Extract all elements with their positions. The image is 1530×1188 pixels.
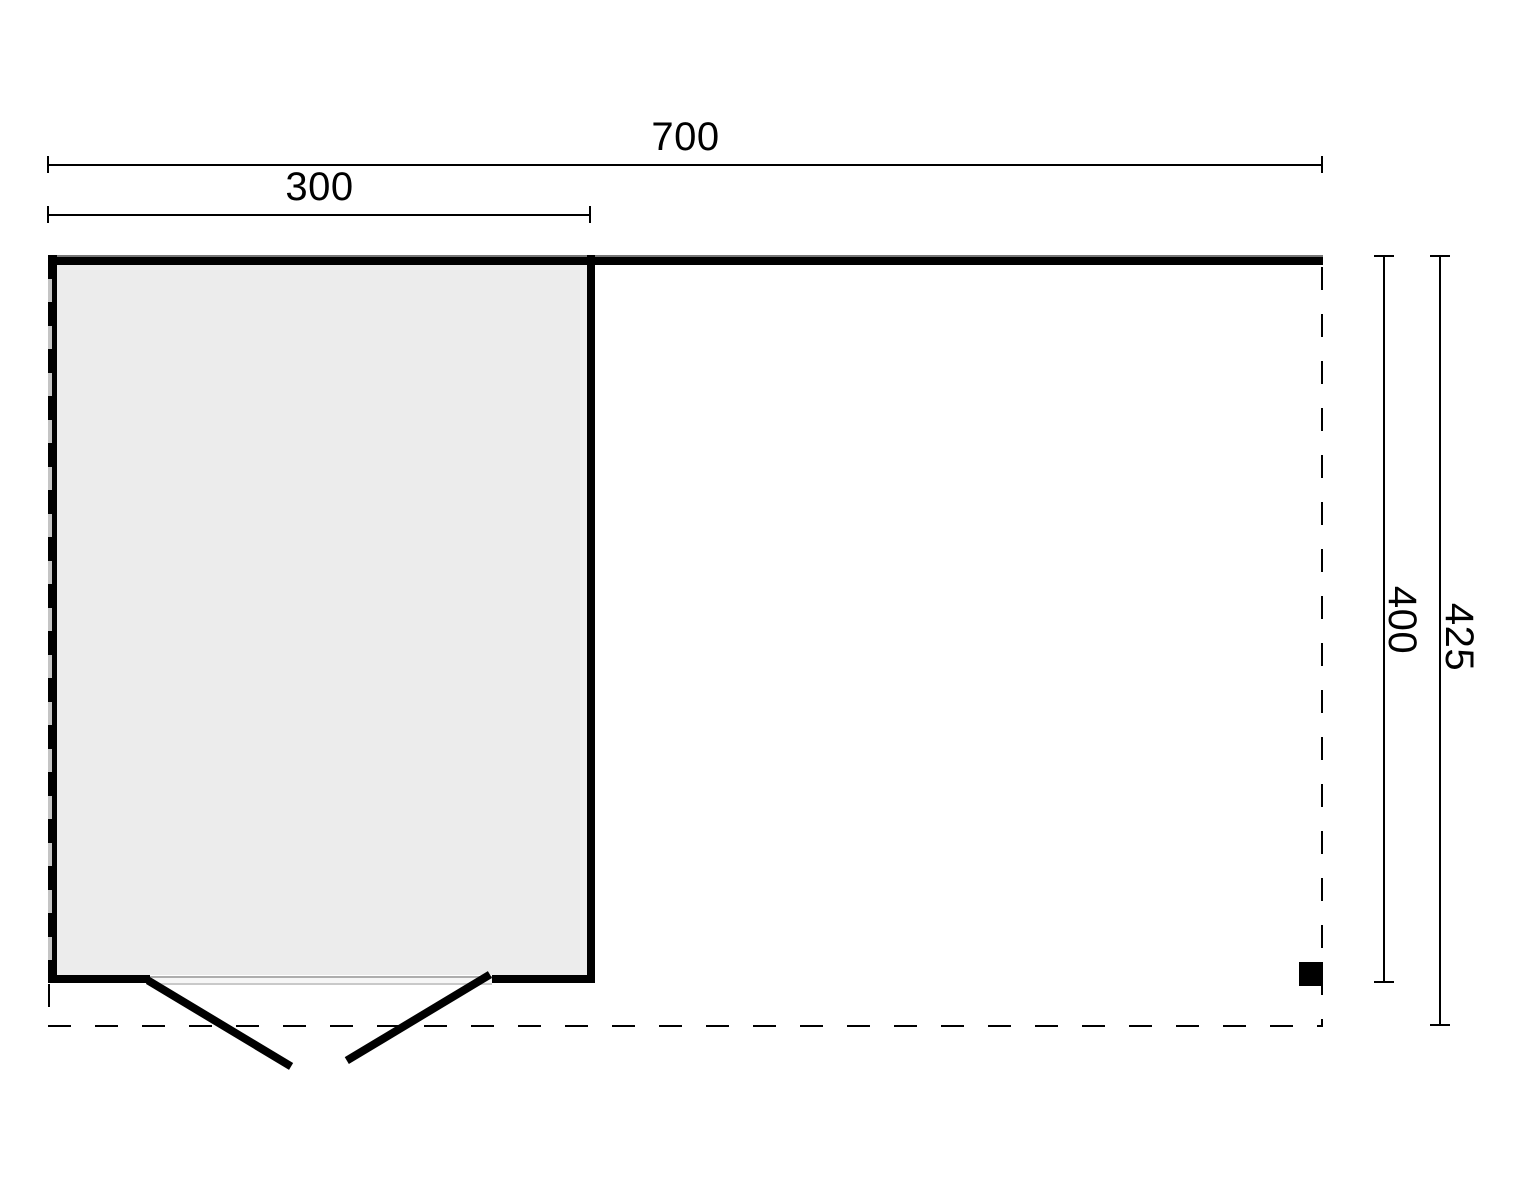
room-right-wall xyxy=(587,255,595,983)
door-threshold xyxy=(150,976,492,985)
dim-total-width-label: 700 xyxy=(48,117,1323,157)
room-left-wall xyxy=(52,255,57,983)
terrace-outline-right xyxy=(1321,267,1323,1026)
dim-room-width-line xyxy=(48,214,591,216)
dim-room-depth-bar-top xyxy=(1374,255,1394,257)
structure-top-wall xyxy=(48,255,1323,265)
terrace-corner-post xyxy=(1299,962,1323,986)
room-floor-area xyxy=(57,265,587,975)
dim-total-width-tick-right xyxy=(1321,156,1323,173)
dim-room-width-tick-left xyxy=(47,206,49,223)
terrace-outline-left xyxy=(48,984,50,1025)
dim-room-depth-label: 400 xyxy=(1382,560,1422,680)
dim-room-width-label: 300 xyxy=(48,167,591,207)
door-leaf-right xyxy=(345,971,492,1064)
dim-total-depth-label: 425 xyxy=(1439,577,1479,697)
door-leaf-left xyxy=(146,977,293,1070)
dim-room-width-tick-right xyxy=(589,206,591,223)
dim-room-depth-bar-bottom xyxy=(1374,981,1394,983)
floor-plan-canvas: 700 300 400 425 xyxy=(0,0,1530,1188)
terrace-outline-bottom xyxy=(48,1025,1323,1027)
room-bottom-wall-left-segment xyxy=(48,975,150,983)
dim-total-depth-bar-top xyxy=(1430,255,1450,257)
dim-total-depth-bar-bottom xyxy=(1430,1024,1450,1026)
dim-total-width-line xyxy=(48,164,1323,166)
room-bottom-wall-right-segment xyxy=(492,975,595,983)
